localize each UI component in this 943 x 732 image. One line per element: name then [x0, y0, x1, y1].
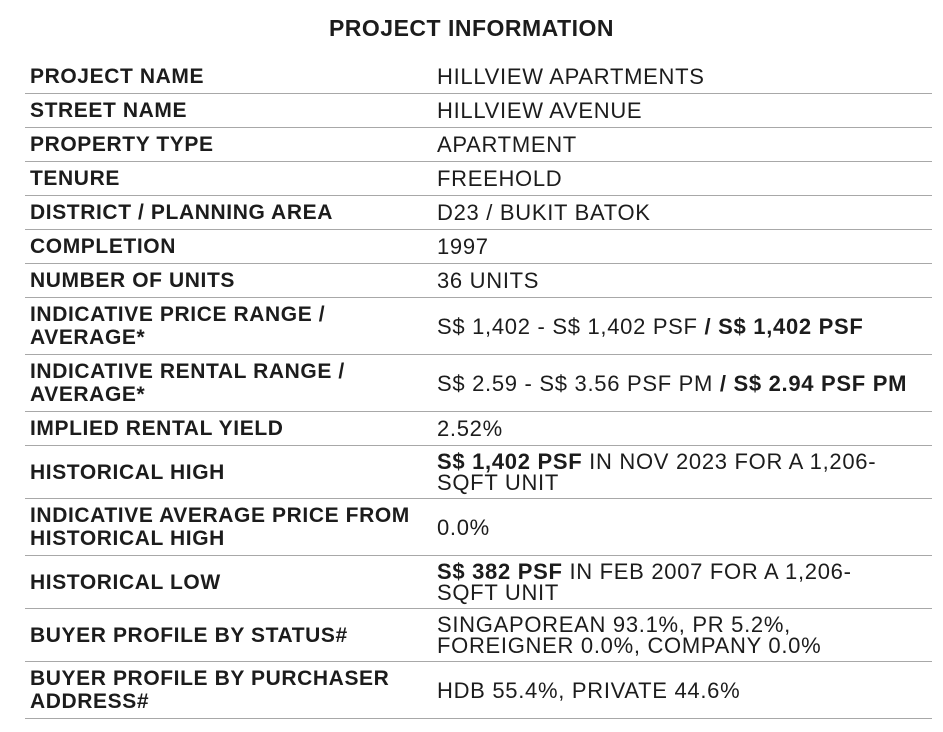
row-label: PROJECT NAME [25, 65, 437, 88]
value-segment-bold: / S$ 1,402 PSF [705, 314, 864, 339]
row-value: 0.0% [437, 517, 932, 538]
row-value: 2.52% [437, 418, 932, 439]
value-segment: APARTMENT [437, 132, 577, 157]
row-label: BUYER PROFILE BY STATUS# [25, 624, 437, 647]
row-value: S$ 1,402 - S$ 1,402 PSF / S$ 1,402 PSF [437, 316, 932, 337]
table-row: INDICATIVE RENTAL RANGE / AVERAGE*S$ 2.5… [25, 355, 932, 412]
row-label: TENURE [25, 167, 437, 190]
row-value: HDB 55.4%, PRIVATE 44.6% [437, 680, 932, 701]
row-value: 36 UNITS [437, 270, 932, 291]
row-value: S$ 1,402 PSF IN NOV 2023 FOR A 1,206- SQ… [437, 451, 932, 493]
row-value: FREEHOLD [437, 168, 932, 189]
row-value: 1997 [437, 236, 932, 257]
row-label: HISTORICAL LOW [25, 571, 437, 594]
row-label: PROPERTY TYPE [25, 133, 437, 156]
row-value: HILLVIEW AVENUE [437, 100, 932, 121]
value-segment: 2.52% [437, 416, 503, 441]
row-label: INDICATIVE AVERAGE PRICE FROM HISTORICAL… [25, 504, 437, 550]
table-row: COMPLETION1997 [25, 230, 932, 264]
value-segment: S$ 1,402 - S$ 1,402 PSF [437, 314, 705, 339]
table-row: INDICATIVE PRICE RANGE / AVERAGE*S$ 1,40… [25, 298, 932, 355]
table-row: PROJECT NAMEHILLVIEW APARTMENTS [25, 60, 932, 94]
row-label: INDICATIVE PRICE RANGE / AVERAGE* [25, 303, 437, 349]
value-segment: HILLVIEW APARTMENTS [437, 64, 705, 89]
table-row: STREET NAMEHILLVIEW AVENUE [25, 94, 932, 128]
row-label: COMPLETION [25, 235, 437, 258]
row-label: INDICATIVE RENTAL RANGE / AVERAGE* [25, 360, 437, 406]
row-label: HISTORICAL HIGH [25, 461, 437, 484]
value-segment: HDB 55.4%, PRIVATE 44.6% [437, 678, 740, 703]
row-value: S$ 382 PSF IN FEB 2007 FOR A 1,206- SQFT… [437, 561, 932, 603]
row-value: S$ 2.59 - S$ 3.56 PSF PM / S$ 2.94 PSF P… [437, 373, 932, 394]
value-segment: S$ 2.59 - S$ 3.56 PSF PM [437, 371, 720, 396]
table-row: HISTORICAL HIGHS$ 1,402 PSF IN NOV 2023 … [25, 446, 932, 499]
value-segment: 36 UNITS [437, 268, 539, 293]
table-row: BUYER PROFILE BY PURCHASER ADDRESS#HDB 5… [25, 662, 932, 719]
project-info-table: PROJECT NAMEHILLVIEW APARTMENTSSTREET NA… [25, 60, 932, 719]
value-segment: 0.0% [437, 515, 490, 540]
value-segment: D23 / BUKIT BATOK [437, 200, 651, 225]
value-segment: HILLVIEW AVENUE [437, 98, 642, 123]
table-row: INDICATIVE AVERAGE PRICE FROM HISTORICAL… [25, 499, 932, 556]
row-value: HILLVIEW APARTMENTS [437, 66, 932, 87]
row-label: STREET NAME [25, 99, 437, 122]
row-label: NUMBER OF UNITS [25, 269, 437, 292]
row-value: APARTMENT [437, 134, 932, 155]
value-segment-bold: / S$ 2.94 PSF PM [720, 371, 907, 396]
row-value: D23 / BUKIT BATOK [437, 202, 932, 223]
value-segment: FREEHOLD [437, 166, 562, 191]
row-label: IMPLIED RENTAL YIELD [25, 417, 437, 440]
table-row: IMPLIED RENTAL YIELD2.52% [25, 412, 932, 446]
value-segment: SINGAPOREAN 93.1%, PR 5.2%, FOREIGNER 0.… [437, 612, 821, 658]
table-row: NUMBER OF UNITS36 UNITS [25, 264, 932, 298]
table-row: DISTRICT / PLANNING AREAD23 / BUKIT BATO… [25, 196, 932, 230]
row-label: DISTRICT / PLANNING AREA [25, 201, 437, 224]
table-row: PROPERTY TYPEAPARTMENT [25, 128, 932, 162]
table-row: HISTORICAL LOWS$ 382 PSF IN FEB 2007 FOR… [25, 556, 932, 609]
row-value: SINGAPOREAN 93.1%, PR 5.2%, FOREIGNER 0.… [437, 614, 932, 656]
row-label: BUYER PROFILE BY PURCHASER ADDRESS# [25, 667, 437, 713]
value-segment: 1997 [437, 234, 489, 259]
table-row: BUYER PROFILE BY STATUS#SINGAPOREAN 93.1… [25, 609, 932, 662]
page-title: PROJECT INFORMATION [0, 15, 943, 42]
table-row: TENUREFREEHOLD [25, 162, 932, 196]
